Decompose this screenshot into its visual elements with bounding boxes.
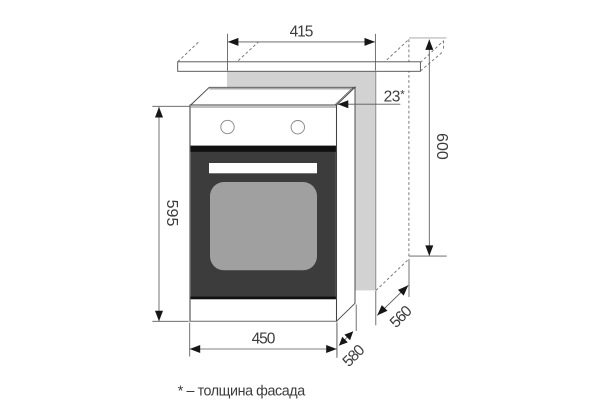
svg-text:*: * (400, 89, 405, 101)
svg-text:* – толщина фасада: * – толщина фасада (178, 384, 305, 400)
svg-text:23: 23 (384, 89, 400, 106)
svg-text:415: 415 (290, 23, 313, 40)
svg-text:600: 600 (433, 133, 450, 160)
svg-text:595: 595 (163, 200, 180, 227)
svg-text:450: 450 (252, 330, 276, 347)
